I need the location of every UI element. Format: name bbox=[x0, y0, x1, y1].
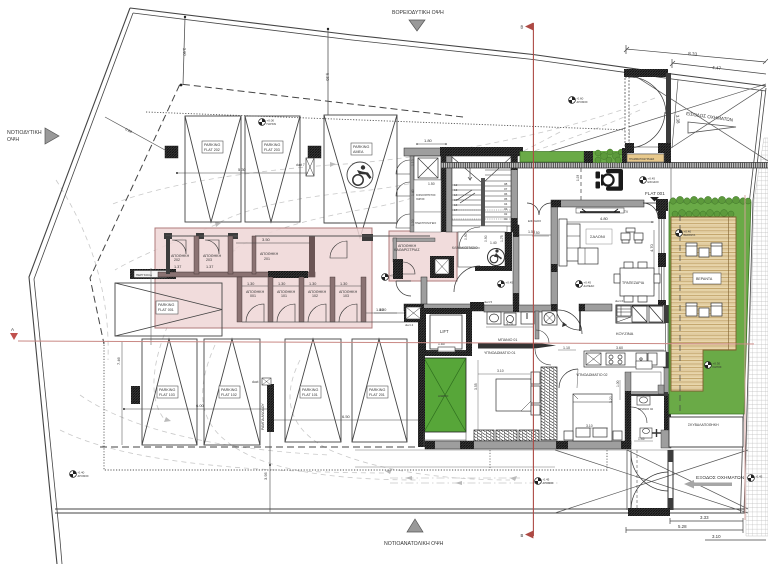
svg-text:ΕΙΣΟΔΟΣ: ΕΙΣΟΔΟΣ bbox=[528, 219, 541, 223]
svg-text:ΚΟΥΖΙΝΑ: ΚΟΥΖΙΝΑ bbox=[616, 331, 634, 336]
svg-text:ΕΙΣΟΔΟΣ: ΕΙΣΟΔΟΣ bbox=[648, 180, 660, 184]
svg-text:FLAT 001: FLAT 001 bbox=[158, 308, 174, 312]
svg-text:1.10: 1.10 bbox=[563, 346, 570, 350]
svg-text:ΒΕΡΑΝΤΑ: ΒΕΡΑΝΤΑ bbox=[684, 233, 696, 237]
svg-text:6.00: 6.00 bbox=[196, 403, 205, 408]
svg-text:ΔΡΟΜΟΣ: ΔΡΟΜΟΣ bbox=[78, 474, 90, 478]
svg-text:B: B bbox=[521, 533, 524, 538]
svg-text:5.28: 5.28 bbox=[678, 524, 687, 529]
svg-text:FLAT 103: FLAT 103 bbox=[159, 393, 175, 397]
svg-text:1.45: 1.45 bbox=[638, 437, 645, 441]
svg-text:PARKING: PARKING bbox=[302, 388, 318, 392]
svg-text:1.37: 1.37 bbox=[206, 265, 213, 269]
svg-text:5.20: 5.20 bbox=[325, 73, 330, 82]
svg-text:3.10: 3.10 bbox=[497, 369, 504, 373]
svg-text:1.30: 1.30 bbox=[247, 282, 254, 286]
svg-text:4.70: 4.70 bbox=[649, 243, 654, 252]
svg-text:03: 03 bbox=[504, 207, 508, 211]
svg-text:ΟΨΗ: ΟΨΗ bbox=[7, 137, 19, 143]
svg-text:+0.00: +0.00 bbox=[267, 119, 275, 123]
svg-text:FLAT 001: FLAT 001 bbox=[645, 191, 665, 196]
svg-text:PARKING: PARKING bbox=[158, 303, 174, 307]
svg-text:1.30: 1.30 bbox=[278, 282, 285, 286]
svg-text:ΔΑΠΕΔΟ: ΔΑΠΕΔΟ bbox=[584, 284, 595, 288]
svg-text:ΝΟΤΙΟΑΝΑΤΟΛΙΚΗ ΟΨΗ: ΝΟΤΙΟΑΝΑΤΟΛΙΚΗ ΟΨΗ bbox=[384, 541, 444, 547]
svg-text:FLAT 101: FLAT 101 bbox=[302, 393, 318, 397]
svg-text:1.30: 1.30 bbox=[309, 282, 316, 286]
svg-text:+0.30: +0.30 bbox=[713, 362, 721, 366]
svg-text:ΠΕΡΓΚΟΛΑ: ΠΕΡΓΚΟΛΑ bbox=[136, 273, 152, 277]
svg-text:13: 13 bbox=[454, 188, 458, 192]
svg-text:3.10: 3.10 bbox=[586, 424, 593, 428]
svg-text:ΥΠΝΟΔΩΜΑΤΙΟ 01: ΥΠΝΟΔΩΜΑΤΙΟ 01 bbox=[484, 351, 516, 355]
svg-text:1.30: 1.30 bbox=[340, 282, 347, 286]
svg-text:01: 01 bbox=[504, 217, 508, 221]
svg-text:7.46: 7.46 bbox=[116, 356, 121, 365]
svg-text:12: 12 bbox=[454, 183, 458, 187]
svg-text:15: 15 bbox=[454, 198, 458, 202]
svg-text:ΝΟΤΙΟΔΥΤΙΚΗ: ΝΟΤΙΟΔΥΤΙΚΗ bbox=[7, 130, 42, 136]
svg-text:3.60: 3.60 bbox=[616, 346, 623, 350]
svg-text:1.10: 1.10 bbox=[411, 159, 415, 166]
svg-text:LIFT: LIFT bbox=[440, 329, 449, 334]
svg-text:0.90: 0.90 bbox=[464, 233, 468, 240]
svg-text:4.80: 4.80 bbox=[600, 216, 609, 221]
svg-text:3.55: 3.55 bbox=[474, 383, 478, 390]
svg-text:ΒΟΡΕΙΟΔΥΤΙΚΗ ΟΨΗ: ΒΟΡΕΙΟΔΥΤΙΚΗ ΟΨΗ bbox=[392, 10, 444, 16]
svg-text:203: 203 bbox=[206, 258, 212, 262]
svg-text:FLAT 203: FLAT 203 bbox=[264, 148, 280, 152]
svg-text:ΕΞΟΔΟΣ ΟΧΗΜΑΤΩΝ: ΕΞΟΔΟΣ ΟΧΗΜΑΤΩΝ bbox=[696, 475, 745, 481]
svg-text:ΔΡΟΜΟΣ: ΔΡΟΜΟΣ bbox=[577, 100, 589, 104]
svg-text:ΚΑΘΑΡΙΣΤΡΙΑΣ: ΚΑΘΑΡΙΣΤΡΙΑΣ bbox=[394, 248, 420, 252]
svg-text:AMEA: AMEA bbox=[353, 150, 364, 154]
svg-text:101: 101 bbox=[281, 294, 287, 298]
svg-text:ΚΗΠΟΣ: ΚΗΠΟΣ bbox=[713, 365, 722, 369]
svg-text:103: 103 bbox=[343, 294, 349, 298]
svg-text:PARKING: PARKING bbox=[264, 143, 280, 147]
svg-text:8.33: 8.33 bbox=[688, 51, 698, 57]
svg-text:ΧΩΡΟΣ: ΧΩΡΟΣ bbox=[416, 198, 425, 201]
svg-text:ΣΚΥΒΑΛΑΠΟΘΗΚΗ: ΣΚΥΒΑΛΑΠΟΘΗΚΗ bbox=[688, 423, 719, 427]
svg-text:ΑΙΘΡΙΟ: ΑΙΘΡΙΟ bbox=[438, 394, 449, 398]
svg-text:ΤΡΑΠΕΖΑΡΙΑ: ΤΡΑΠΕΖΑΡΙΑ bbox=[622, 281, 645, 285]
svg-text:ΚΟΙΝΟΧΡΗΣΤΟΣ: ΚΟΙΝΟΧΡΗΣΤΟΣ bbox=[416, 194, 436, 197]
svg-text:3.70: 3.70 bbox=[506, 322, 513, 326]
svg-text:+0.45: +0.45 bbox=[648, 177, 656, 181]
svg-text:duct 7: duct 7 bbox=[296, 163, 305, 167]
svg-text:3.60: 3.60 bbox=[182, 48, 188, 57]
svg-text:+0.40: +0.40 bbox=[684, 230, 692, 234]
svg-text:1.80: 1.80 bbox=[379, 308, 386, 312]
svg-text:0.90: 0.90 bbox=[484, 235, 488, 242]
svg-text:A: A bbox=[11, 327, 14, 332]
svg-text:B: B bbox=[521, 25, 524, 30]
svg-text:17: 17 bbox=[454, 208, 458, 212]
svg-text:-0.60: -0.60 bbox=[577, 97, 584, 101]
svg-text:PARKING: PARKING bbox=[159, 388, 175, 392]
svg-text:202: 202 bbox=[174, 258, 180, 262]
svg-text:duct 5: duct 5 bbox=[484, 300, 493, 304]
svg-text:FLAT 201: FLAT 201 bbox=[369, 393, 385, 397]
svg-text:04: 04 bbox=[504, 202, 508, 206]
svg-text:PARKING: PARKING bbox=[204, 143, 220, 147]
svg-text:FLAT 102: FLAT 102 bbox=[221, 393, 237, 397]
svg-text:1.93: 1.93 bbox=[576, 175, 580, 181]
svg-text:ΠΑΡΚΙΝ: ΠΑΡΚΙΝ bbox=[267, 122, 277, 126]
svg-text:1.37: 1.37 bbox=[174, 265, 181, 269]
svg-text:3.38: 3.38 bbox=[675, 115, 681, 125]
svg-text:ΜΠΑΝΙΟ 01: ΜΠΑΝΙΟ 01 bbox=[498, 338, 517, 342]
svg-text:ΗΛΕΚΤΡΟΛΟΓΕΙΟ: ΗΛΕΚΤΡΟΛΟΓΕΙΟ bbox=[415, 222, 436, 225]
svg-text:05: 05 bbox=[504, 197, 508, 201]
svg-text:1.50: 1.50 bbox=[533, 231, 540, 235]
svg-text:PARKING: PARKING bbox=[221, 388, 237, 392]
svg-text:5.30: 5.30 bbox=[238, 167, 247, 172]
svg-text:1.00: 1.00 bbox=[411, 219, 415, 226]
svg-text:-0.45: -0.45 bbox=[756, 475, 763, 479]
svg-text:ΓΡΑΜΜΑΤΟΘΥΡΙΔΕΣ: ΓΡΑΜΜΑΤΟΘΥΡΙΔΕΣ bbox=[629, 157, 655, 161]
svg-text:06: 06 bbox=[504, 192, 508, 196]
svg-text:-0.45: -0.45 bbox=[543, 478, 550, 482]
svg-text:1.40: 1.40 bbox=[411, 189, 415, 196]
svg-text:3.20: 3.20 bbox=[609, 396, 613, 403]
svg-text:4.47: 4.47 bbox=[712, 65, 722, 71]
svg-text:ΒΕΡΑΝΤΑ: ΒΕΡΑΝΤΑ bbox=[696, 277, 713, 281]
svg-text:PARKING: PARKING bbox=[369, 388, 385, 392]
svg-text:1.00: 1.00 bbox=[616, 380, 620, 387]
svg-text:1.40: 1.40 bbox=[490, 241, 497, 245]
svg-text:3.95: 3.95 bbox=[263, 471, 268, 480]
svg-text:+0.45: +0.45 bbox=[506, 281, 514, 285]
svg-text:ΡΑΜΠΑ ΑΝΟΔΟΥ: ΡΑΜΠΑ ΑΝΟΔΟΥ bbox=[261, 403, 265, 430]
svg-text:duct 4: duct 4 bbox=[405, 323, 414, 327]
svg-text:3.50: 3.50 bbox=[262, 237, 271, 242]
svg-text:14: 14 bbox=[454, 193, 458, 197]
svg-text:201: 201 bbox=[264, 257, 270, 261]
svg-text:+0.00: +0.00 bbox=[390, 274, 398, 278]
svg-text:07: 07 bbox=[504, 187, 508, 191]
svg-text:ΣΑΛΟΝΙ: ΣΑΛΟΝΙ bbox=[590, 234, 605, 239]
svg-text:1.50: 1.50 bbox=[428, 182, 435, 186]
svg-text:duct: duct bbox=[252, 380, 258, 384]
svg-text:3.10: 3.10 bbox=[712, 534, 721, 539]
svg-text:6.50: 6.50 bbox=[342, 414, 351, 419]
svg-text:PARKING: PARKING bbox=[353, 145, 369, 149]
svg-text:08: 08 bbox=[504, 182, 508, 186]
svg-text:+0.45: +0.45 bbox=[584, 281, 592, 285]
svg-text:-0.40: -0.40 bbox=[78, 471, 85, 475]
svg-text:ΑΠΟΘΗΚΗ: ΑΠΟΘΗΚΗ bbox=[260, 252, 279, 256]
svg-text:ΥΠΝΟΔΩΜΑΤΙΟ 02: ΥΠΝΟΔΩΜΑΤΙΟ 02 bbox=[576, 373, 608, 377]
svg-text:3.33: 3.33 bbox=[700, 515, 709, 520]
svg-text:duct 6: duct 6 bbox=[615, 299, 624, 303]
svg-text:ΔΡΟΜΟΣ: ΔΡΟΜΟΣ bbox=[543, 481, 555, 485]
svg-text:1.80: 1.80 bbox=[424, 138, 433, 143]
svg-text:ΜΠΑΝΙΟ 02: ΜΠΑΝΙΟ 02 bbox=[638, 407, 654, 411]
svg-text:02: 02 bbox=[504, 212, 508, 216]
svg-text:001: 001 bbox=[250, 294, 256, 298]
svg-text:16: 16 bbox=[454, 203, 458, 207]
svg-text:FLAT 202: FLAT 202 bbox=[204, 148, 220, 152]
svg-text:102: 102 bbox=[312, 294, 318, 298]
svg-text:1.75: 1.75 bbox=[500, 235, 504, 242]
